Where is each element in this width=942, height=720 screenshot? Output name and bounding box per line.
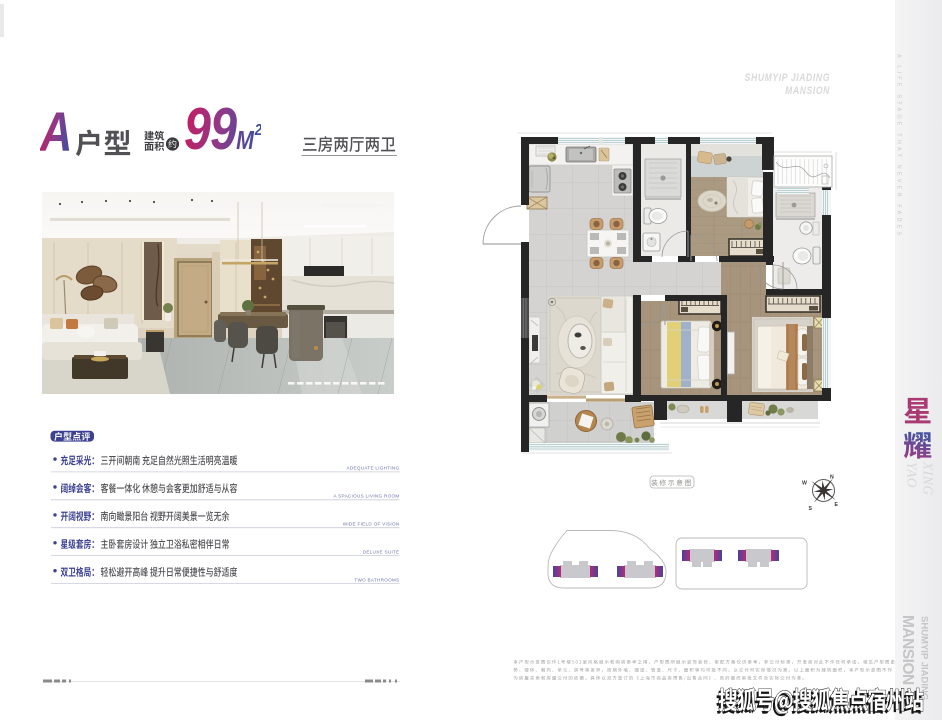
svg-text:S: S xyxy=(809,506,813,512)
svg-text:YAO: YAO xyxy=(905,462,920,488)
svg-text:A SPACIOUS LIVING ROOM: A SPACIOUS LIVING ROOM xyxy=(334,494,400,499)
svg-text:TWO BATHROOMS: TWO BATHROOMS xyxy=(354,577,399,582)
svg-text:E: E xyxy=(835,502,839,508)
svg-text:A LIFE STAGE THAT NEVER FADES: A LIFE STAGE THAT NEVER FADES xyxy=(896,54,902,238)
svg-text:DELUXE SUITE: DELUXE SUITE xyxy=(363,549,400,554)
svg-text:ADEQUATE LIGHTING: ADEQUATE LIGHTING xyxy=(347,466,400,471)
svg-text:N: N xyxy=(830,475,834,481)
svg-text:MANSION: MANSION xyxy=(899,615,916,685)
svg-text:XING: XING xyxy=(921,461,936,496)
svg-text:WIDE FIELD OF VISION: WIDE FIELD OF VISION xyxy=(343,522,400,527)
svg-text:W: W xyxy=(802,481,807,487)
